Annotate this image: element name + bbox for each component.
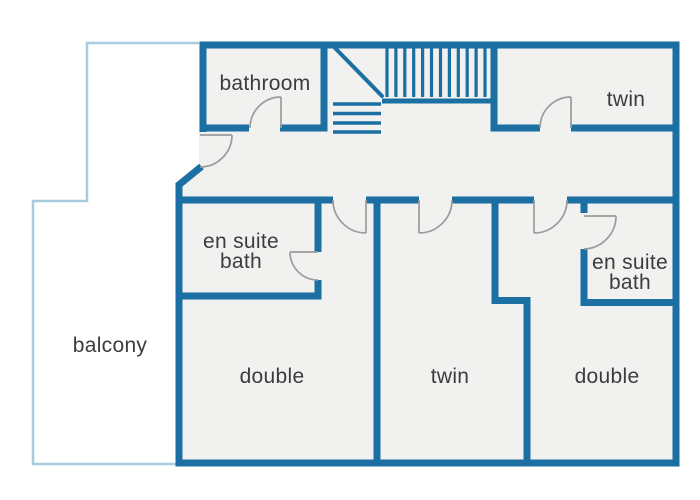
floor-plan-drawing: bathroom twin en suite bath en suite bat… — [0, 0, 700, 500]
label-ensuite-left-line2: bath — [220, 250, 262, 273]
label-balcony: balcony — [73, 334, 148, 357]
label-ensuite-right-line2: bath — [609, 271, 651, 294]
label-twin-top: twin — [607, 88, 646, 111]
label-double-left: double — [240, 365, 305, 388]
label-double-right: double — [575, 365, 640, 388]
floor-plan: bathroom twin en suite bath en suite bat… — [0, 0, 700, 500]
balcony-outline — [33, 43, 199, 464]
label-twin-bottom: twin — [431, 365, 470, 388]
label-bathroom: bathroom — [219, 72, 310, 95]
